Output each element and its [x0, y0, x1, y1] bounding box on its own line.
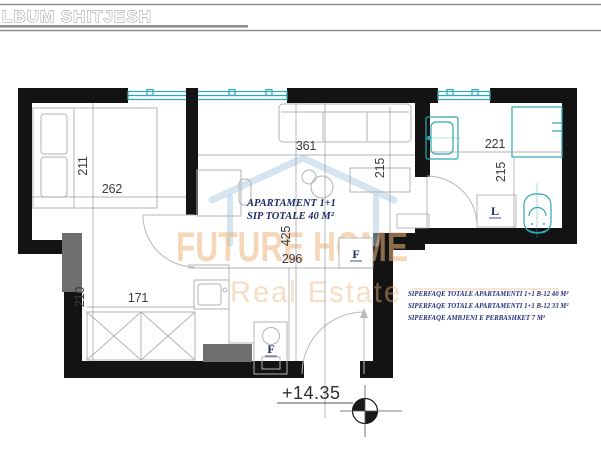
level-value: +14.35: [282, 383, 341, 403]
floor-plan-page: LBUM SHITJESH: [0, 0, 601, 450]
washer-marker: L: [491, 204, 499, 218]
kitchen-marker: F: [267, 342, 274, 356]
bathroom-sink: [426, 117, 460, 159]
kitchen-sink: [194, 280, 229, 309]
bathroom-niche: [397, 214, 429, 228]
level-marker: +14.35: [277, 383, 402, 437]
apartment-label-line1: APARTAMENT 1+1: [246, 198, 336, 209]
dim-corridor-height: 210: [73, 287, 87, 308]
entrance-door: [302, 308, 368, 374]
dim-living-width: 296: [282, 252, 303, 266]
apartment-label-line2: SIP TOTALE 40 M²: [247, 211, 335, 222]
note-line-3: SIPERFAQE AMBJENI E PERBASHKET 7 M²: [408, 315, 546, 322]
title-underline: [0, 25, 248, 28]
dim-corridor-width: 171: [128, 291, 149, 305]
page-title: LBUM SHITJESH: [2, 7, 152, 26]
dim-living-height-right: 215: [373, 158, 387, 179]
note-line-1: SIPERFAQE TOTALE APARTAMENTI 1+1 B-12 40…: [408, 291, 569, 298]
dim-bedroom-height: 211: [76, 156, 90, 176]
radiator-marker: F: [352, 247, 359, 261]
dim-bath-width: 221: [485, 137, 506, 151]
area-notes: SIPERFAQE TOTALE APARTAMENTI 1+1 B-12 40…: [408, 291, 569, 322]
bathroom-window: [438, 88, 490, 103]
dim-living-height: 425: [279, 226, 293, 247]
dim-bedroom-width: 262: [102, 182, 123, 196]
bedroom-bed: [33, 108, 157, 208]
shaft-block: [62, 233, 82, 292]
note-line-2: SIPERFAQE TOTALE APARTAMENTI 1+1 B-12 33…: [408, 303, 569, 310]
level-symbol-icon: [340, 385, 402, 437]
kitchen-stove: [203, 344, 252, 362]
bathroom-door: [427, 176, 477, 227]
dim-living-width-top: 361: [296, 139, 317, 153]
living-bedroom-window: [128, 88, 287, 103]
dim-bath-height: 215: [494, 162, 508, 183]
entrance-arrow-icon: [360, 308, 368, 318]
corridor-wardrobe: [87, 312, 195, 360]
watermark-tagline: Real Estate: [230, 276, 402, 309]
bedroom-divider-wall: [186, 88, 198, 215]
shower-cabin: [512, 107, 562, 157]
header: LBUM SHITJESH: [0, 5, 601, 31]
living-table: [302, 170, 333, 198]
living-sofa: [279, 104, 411, 142]
